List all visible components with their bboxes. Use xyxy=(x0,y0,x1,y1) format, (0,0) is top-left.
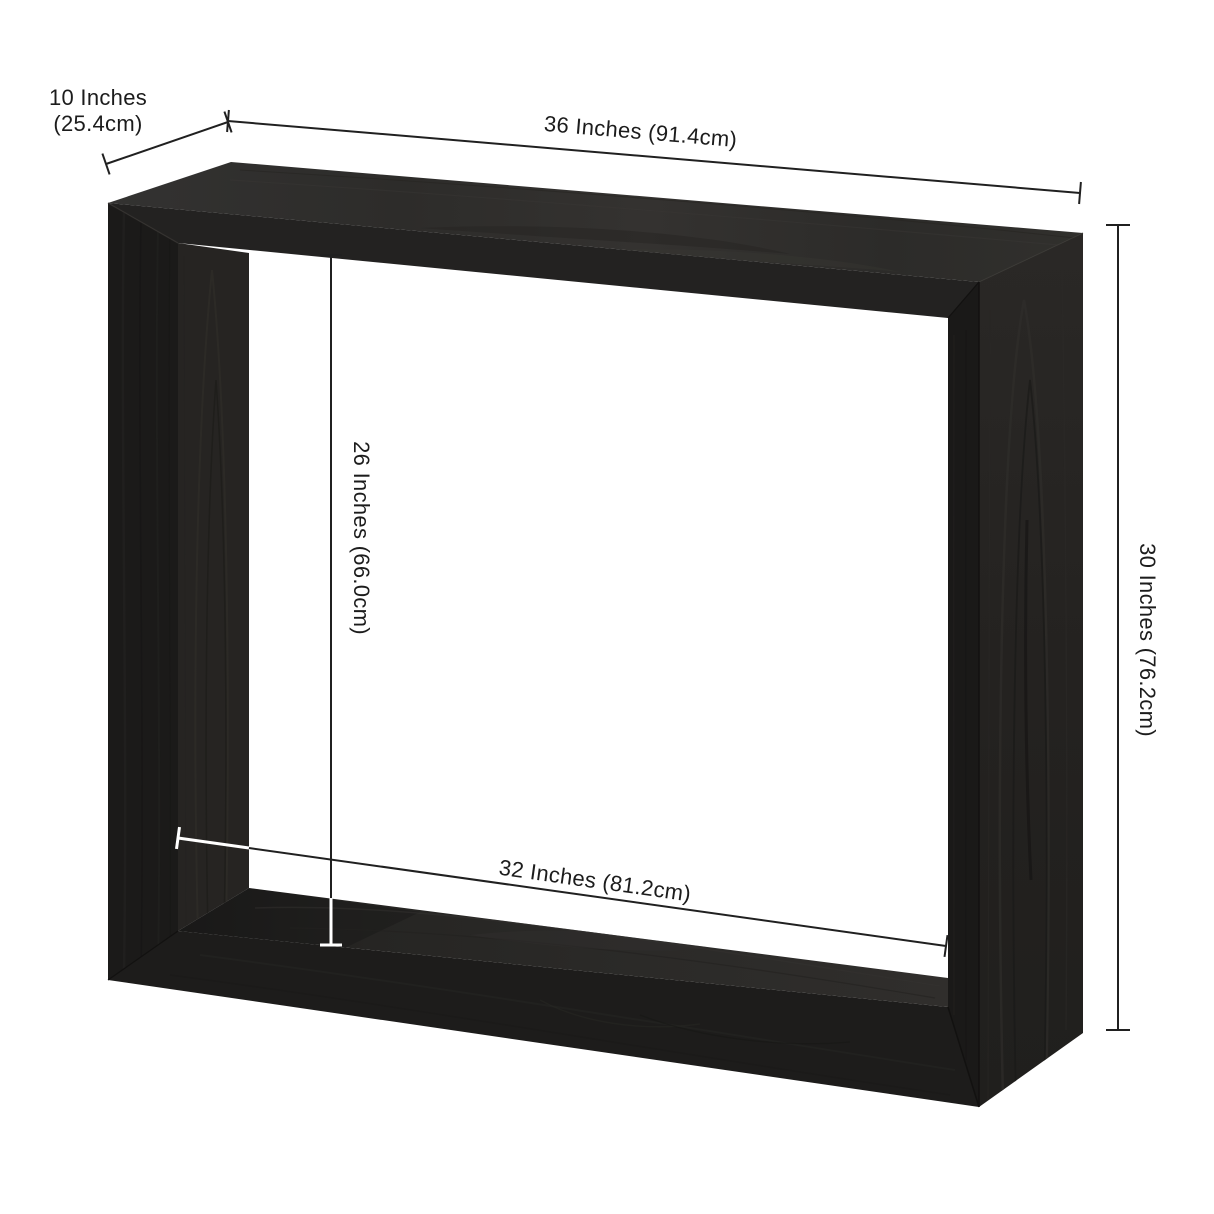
dim-opening-width-label: 32 Inches (81.2cm) xyxy=(497,855,692,907)
dim-height-label: 30 Inches (76.2cm) xyxy=(1135,543,1160,737)
frame-front-right-leg xyxy=(948,282,979,1107)
dim-height: 30 Inches (76.2cm) xyxy=(1106,225,1160,1030)
dim-width-label: 36 Inches (91.4cm) xyxy=(543,111,738,152)
dim-depth-label-line2: (25.4cm) xyxy=(53,111,142,136)
dim-depth-label-line1: 10 Inches xyxy=(49,85,147,110)
dim-width-tick-end xyxy=(1079,182,1081,204)
console-table-frame xyxy=(108,162,1083,1107)
diagram-svg: 10 Inches (25.4cm) 36 Inches (91.4cm) 30… xyxy=(0,0,1214,1214)
dimension-diagram: 10 Inches (25.4cm) 36 Inches (91.4cm) 30… xyxy=(0,0,1214,1214)
dim-depth: 10 Inches (25.4cm) xyxy=(49,85,232,174)
frame-inner-left-face xyxy=(178,243,249,935)
dim-opening-height: 26 Inches (66.0cm) xyxy=(320,255,374,945)
frame-right-side-face xyxy=(979,233,1083,1107)
frame-front-left-leg xyxy=(108,203,178,980)
dim-width-tick-start xyxy=(227,110,229,132)
dim-opening-height-label: 26 Inches (66.0cm) xyxy=(349,441,374,635)
